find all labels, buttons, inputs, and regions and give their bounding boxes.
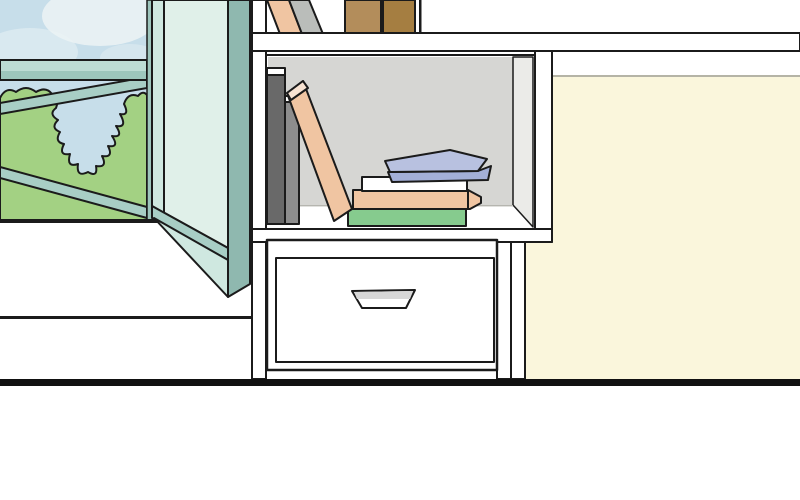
compartment-side-panel (513, 57, 533, 227)
shelf-right-leg-inner (497, 240, 511, 379)
pane-edge-strip (228, 0, 250, 297)
drawer-face (276, 258, 494, 362)
drawer-cabinet (267, 240, 497, 370)
window-scene (0, 0, 161, 223)
cream-wall-upper (552, 77, 800, 379)
cream-wall-lower (526, 241, 553, 379)
right-wall (526, 75, 800, 379)
book-top-brown-2 (383, 0, 415, 34)
book-darkgray (267, 75, 285, 224)
windowsill-line (0, 316, 253, 319)
book-stack-green (348, 208, 466, 226)
book-darkgray-pages (267, 68, 285, 75)
middle-shelf-compartment (266, 55, 535, 229)
drawer-handle-shade (354, 291, 413, 299)
book-stack-peach (353, 190, 468, 209)
book-top-brown-1 (345, 0, 381, 34)
shelf-board-long (252, 33, 800, 51)
comic-panel (0, 0, 800, 500)
top-shelf-books (267, 0, 422, 34)
shelf-right-stile (535, 51, 552, 242)
comic-panel-canvas (0, 0, 800, 500)
pane-left-stile (152, 0, 164, 213)
shelf-right-leg-outer (511, 240, 525, 379)
floor-baseboard-line (0, 379, 800, 386)
railing-horizontal-bar-shade (1, 71, 146, 79)
top-compartment-right-wall (419, 0, 422, 34)
window-bottom-rail (0, 219, 161, 223)
shelf-left-stile (252, 0, 266, 379)
